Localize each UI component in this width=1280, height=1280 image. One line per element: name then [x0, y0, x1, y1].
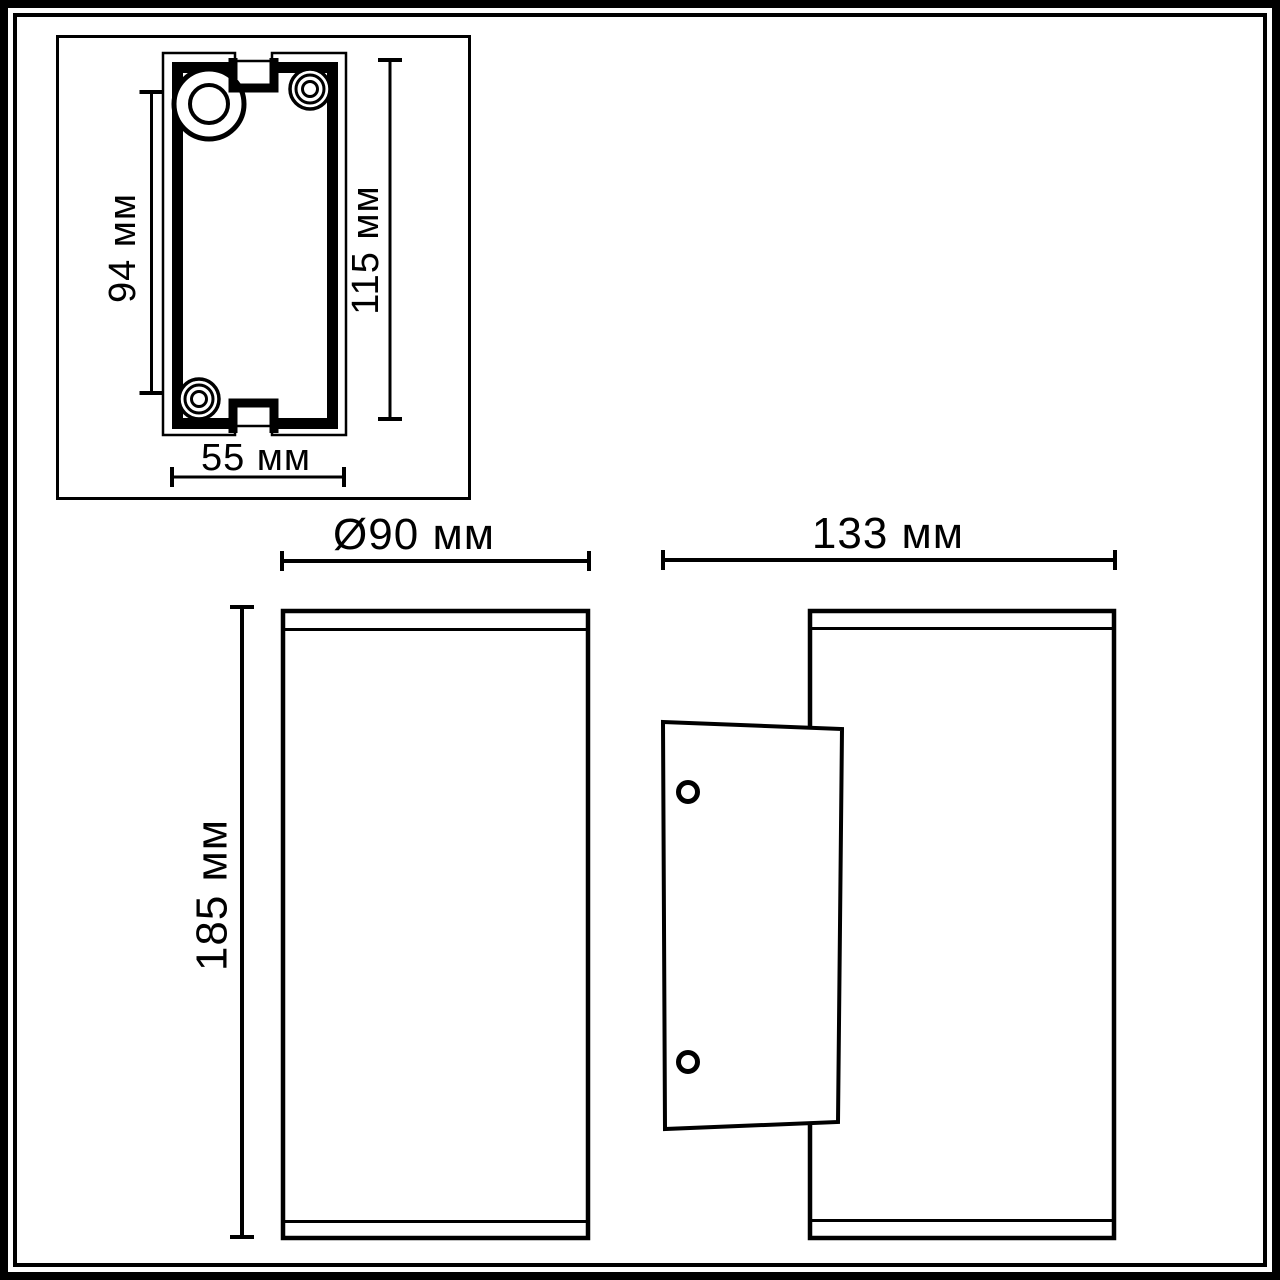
technical-drawing-canvas: 94 мм 115 мм 55 мм Ø90 мм	[0, 0, 1280, 1280]
cable-entry-inner-circle	[190, 85, 228, 123]
dim-body-height: 185 мм	[188, 607, 255, 1237]
dim-diameter: Ø90 мм	[282, 510, 589, 571]
luminaire-body-side	[810, 611, 1114, 1238]
dim-label: 55 мм	[201, 437, 311, 479]
dim-label: 94 мм	[102, 193, 144, 303]
bottom-notch-gap	[236, 414, 271, 433]
luminaire-body-front	[283, 611, 588, 1238]
front-view: Ø90 мм 185 мм	[188, 510, 590, 1238]
screw-hole-top-right	[290, 69, 330, 109]
bracket-hole-bottom	[679, 1053, 698, 1072]
top-notch-gap	[236, 55, 271, 80]
bracket-hole-top	[679, 783, 698, 802]
dim-label: 115 мм	[345, 185, 387, 314]
dim-label: 133 мм	[812, 509, 964, 558]
dim-label: 185 мм	[188, 819, 237, 971]
screw-hole-bottom-left	[179, 379, 219, 419]
side-view: 133 мм	[663, 509, 1115, 1238]
dim-depth: 133 мм	[663, 509, 1115, 570]
technical-drawing-page: 94 мм 115 мм 55 мм Ø90 мм	[0, 0, 1280, 1280]
inset-mounting-plate-view: 94 мм 115 мм 55 мм	[58, 37, 470, 499]
dim-label: Ø90 мм	[333, 510, 495, 559]
